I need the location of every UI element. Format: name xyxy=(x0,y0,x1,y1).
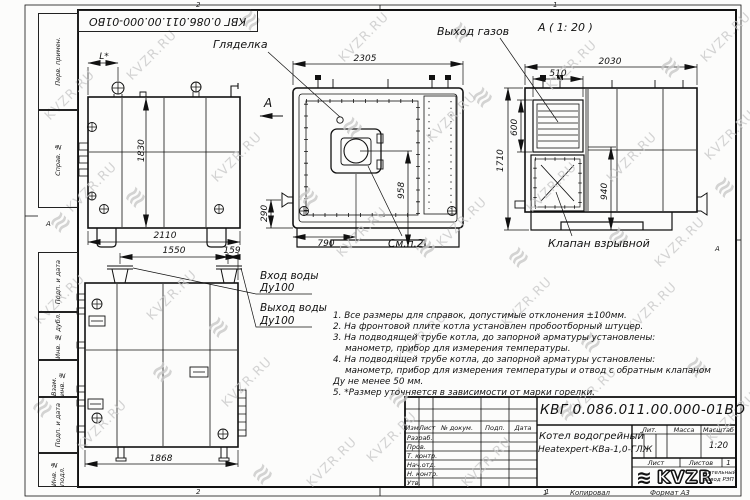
dim-1710: 1710 xyxy=(496,149,506,172)
water-inlet-dn-label: Ду100 xyxy=(260,282,294,294)
note-line: Ду не менее 50 мм. xyxy=(333,377,423,387)
note-line: 1. Все размеры для справок, допустимые о… xyxy=(333,311,627,321)
margin-stamp-box: Инв. № дубл. xyxy=(38,312,78,360)
lit-header: Лит. xyxy=(633,426,666,434)
footer-copied-label: Копировал xyxy=(570,489,610,497)
note-line: манометр, прибор для измерения температу… xyxy=(345,366,711,376)
sheets-header: Листов xyxy=(681,459,721,467)
titleblock-row-label: Утв. xyxy=(407,479,421,487)
designation-text-rotated: КВГ 0.086.011.00.000-01ВО xyxy=(89,15,246,28)
margin-stamp-label: Подп. и дата xyxy=(54,260,62,304)
margin-stamp-label: Перв. примен. xyxy=(54,37,62,86)
footer-sheet-number: 1 xyxy=(543,489,547,497)
company-name-line2: завод РЭП xyxy=(704,477,734,483)
margin-stamp-label: Взам. инв. № xyxy=(50,361,66,396)
zone-number-bottom-left: 2 xyxy=(196,488,200,496)
kvzr-wave-icon: ≋ xyxy=(636,467,652,489)
product-name-line1: Котел водогрейный xyxy=(539,431,631,442)
water-inlet-label: Вход воды xyxy=(260,270,319,282)
view-arrow-letter: А xyxy=(264,96,272,110)
dim-940: 940 xyxy=(600,183,610,200)
titleblock-col-header: № докум. xyxy=(433,424,481,432)
titleblock-row-label: Пров. xyxy=(407,443,426,451)
titleblock-row-label: Н. контр. xyxy=(407,470,438,478)
note-line: 3. На подводящей трубе котла, до запорно… xyxy=(333,333,655,343)
dim-1868: 1868 xyxy=(126,454,196,464)
zone-number-top-left: 2 xyxy=(196,1,200,9)
note-line: манометр, прибор для измерения температу… xyxy=(345,344,571,354)
titleblock-col-header: Подп. xyxy=(481,424,509,432)
sheet-header: Лист xyxy=(633,459,679,467)
dim-2110: 2110 xyxy=(130,231,200,241)
dim-L-star: L* xyxy=(92,52,116,62)
dim-2030: 2030 xyxy=(575,57,645,67)
dim-600: 600 xyxy=(510,119,520,136)
dim-1830: 1830 xyxy=(137,139,147,162)
dim-2305: 2305 xyxy=(330,54,400,64)
zone-letter-left: А xyxy=(46,220,51,228)
titleblock-row-label: Т. контр. xyxy=(407,452,437,460)
see-note-ref-label: См.п.2 xyxy=(388,238,423,250)
margin-stamp-box: Взам. инв. № xyxy=(38,360,78,397)
water-outlet-dn-label: Ду100 xyxy=(260,315,294,327)
scale-header: Масштаб xyxy=(702,426,735,434)
explosion-valve-label: Клапан взрывной xyxy=(548,237,650,250)
designation-box: КВГ 0.086.011.00.000-01ВО xyxy=(78,10,258,32)
margin-stamp-box: Справ. № xyxy=(38,110,78,208)
sheets-count: 1 xyxy=(722,459,735,467)
water-outlet-label: Выход воды xyxy=(260,302,327,314)
zone-letter-right: А xyxy=(715,245,720,253)
zone-number-top-right: 1 xyxy=(553,1,557,9)
mass-header: Масса xyxy=(668,426,700,434)
margin-stamp-box: Инв. № подл. xyxy=(38,453,78,487)
dim-1550: 1550 xyxy=(139,246,209,256)
sight-glass-label: Гляделка xyxy=(213,38,268,51)
titleblock-col-header: Лист xyxy=(419,424,433,432)
dim-290: 290 xyxy=(260,205,270,222)
dim-510: 510 xyxy=(530,69,586,79)
titleblock-row-label: Разраб. xyxy=(407,434,433,442)
product-name-line2: Heatexpert-КВа-1,0-ГЛЖ xyxy=(538,445,632,455)
note-line: 4. На подводящей трубе котла, до запорно… xyxy=(333,355,655,365)
dim-159: 159 xyxy=(218,246,246,256)
dim-958: 958 xyxy=(397,182,407,199)
dim-790: 790 xyxy=(303,239,349,249)
margin-stamp-label: Инв. № дубл. xyxy=(54,313,62,359)
titleblock-col-header: Изм xyxy=(405,424,419,432)
note-line: 5. *Размер уточняется в зависимости от м… xyxy=(333,388,595,398)
titleblock-col-header: Дата xyxy=(509,424,537,432)
margin-stamp-box: Подп. и дата xyxy=(38,397,78,453)
margin-stamp-label: Подп. и дата xyxy=(54,403,62,447)
gas-outlet-label: Выход газов xyxy=(437,25,509,38)
titleblock-row-label: Нач.отд. xyxy=(407,461,436,469)
scale-value: 1:20 xyxy=(702,441,735,451)
margin-stamp-label: Справ. № xyxy=(54,143,62,176)
footer-format-label: Формат А3 xyxy=(650,489,690,497)
note-line: 2. На фронтовой плите котла установлен п… xyxy=(333,322,643,332)
margin-stamp-box: Подп. и дата xyxy=(38,252,78,312)
margin-stamp-label: Инв. № подл. xyxy=(50,454,66,486)
margin-stamp-box: Перв. примен. xyxy=(38,13,78,110)
titleblock-designation: КВГ 0.086.011.00.000-01ВО xyxy=(540,402,734,418)
detail-view-title: А ( 1: 20 ) xyxy=(538,21,593,34)
company-name-line1: Котельный xyxy=(704,470,736,476)
drawing-sheet: KVZR.RUKVZR.RUKVZR.RUKVZR.RUKVZR.RUKVZR.… xyxy=(0,0,750,500)
